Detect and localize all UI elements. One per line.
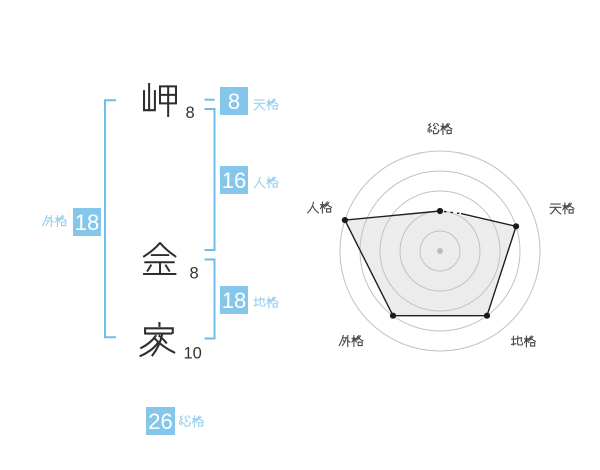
svg-text:18: 18	[75, 210, 99, 235]
svg-text:26: 26	[148, 409, 172, 434]
svg-text:8: 8	[186, 104, 195, 122]
svg-text:18: 18	[222, 288, 246, 313]
svg-text:8: 8	[228, 89, 240, 114]
svg-text:16: 16	[222, 168, 246, 193]
svg-text:8: 8	[190, 265, 199, 283]
svg-text:10: 10	[184, 345, 202, 363]
